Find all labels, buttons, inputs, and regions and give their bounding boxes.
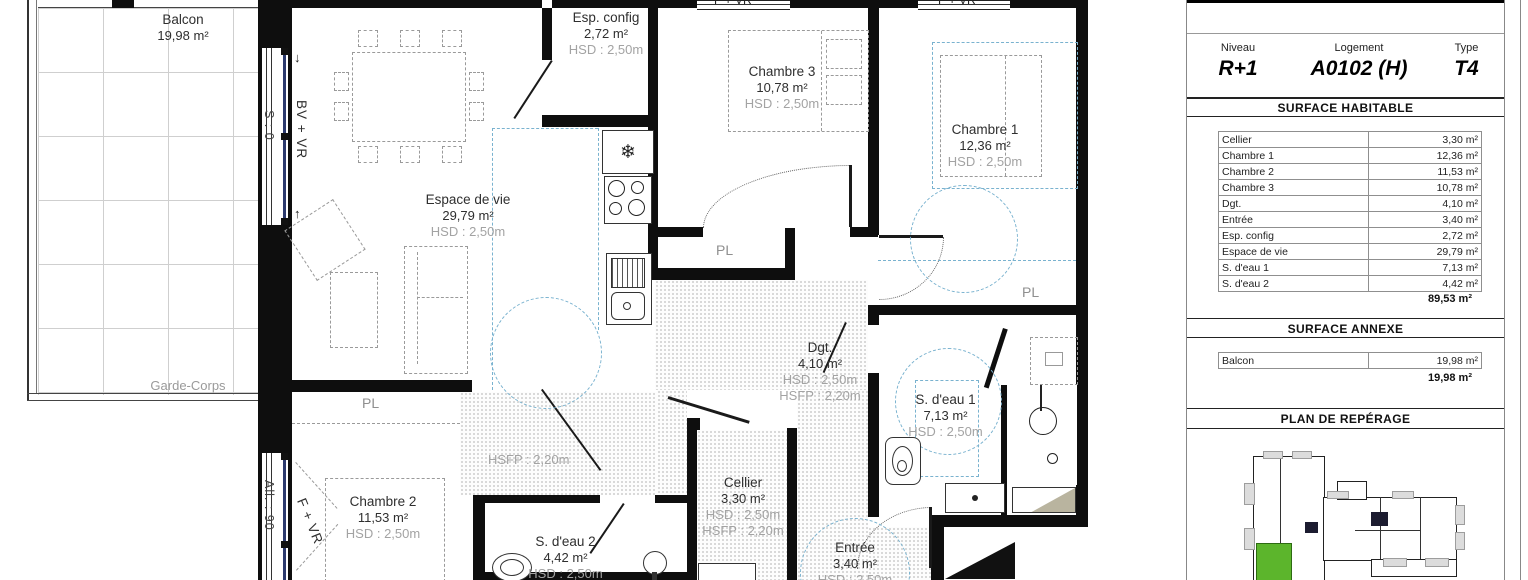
shelf-icon — [698, 563, 756, 580]
burner-icon — [631, 181, 644, 194]
shower-head-icon — [1029, 407, 1057, 435]
placard-label: PL — [362, 395, 379, 411]
burner-icon — [628, 199, 645, 216]
window-stop — [281, 218, 288, 225]
door-leaf — [849, 165, 852, 227]
wall-segment — [658, 227, 703, 237]
wall-segment — [931, 527, 944, 580]
room-label-chambre-2: Chambre 2 11,53 m² HSD : 2,50m — [323, 494, 443, 542]
garde-corps-line — [27, 400, 258, 401]
map-line — [1420, 497, 1421, 559]
surface-annexe-total: 19,98 m² — [1330, 372, 1472, 384]
chair — [358, 146, 378, 163]
ceiling-zone-circle — [910, 185, 1018, 293]
panel-line — [1187, 318, 1504, 319]
kitchen-zone-line — [492, 128, 598, 129]
unit-header: Niveau R+1 Logement A0102 (H) Type T4 — [1187, 42, 1504, 81]
fridge-icon: ❄ — [602, 130, 654, 174]
room-label-s-deau-2: S. d'eau 2 4,42 m² HSD : 2,50m — [508, 534, 623, 580]
table-row: Dgt.4,10 m² — [1219, 196, 1482, 212]
table-row: Espace de vie29,79 m² — [1219, 244, 1482, 260]
wall-segment — [790, 0, 918, 8]
window-type-label: F + VR — [938, 0, 976, 7]
room-label-cellier: Cellier 3,30 m² HSD : 2,50m HSFP : 2,20m — [700, 475, 786, 539]
wall-segment — [785, 228, 795, 280]
map-line — [1280, 456, 1281, 546]
burner-icon — [608, 180, 625, 197]
logement-label: Logement — [1289, 42, 1429, 54]
chair — [334, 72, 349, 91]
panel-line — [1187, 337, 1504, 338]
map-balcony-tick — [1263, 451, 1283, 459]
arrow-down-icon: ↓ — [294, 50, 301, 65]
map-line — [1355, 530, 1420, 531]
floor-plan-sheet: Balcon 19,98 m² Garde-Corps S : 0 BV + V… — [0, 0, 1528, 580]
window-frame — [283, 453, 286, 580]
wall-segment — [542, 115, 658, 127]
map-balcony-tick — [1383, 558, 1407, 567]
chair — [442, 146, 462, 163]
shower-icon — [1007, 385, 1077, 485]
hsfp-label: HSFP : 2,20m — [488, 452, 569, 467]
wall-segment — [655, 495, 687, 503]
chair — [400, 146, 420, 163]
window-type-label: F + VR — [294, 496, 326, 546]
table-row: Cellier3,30 m² — [1219, 132, 1482, 148]
map-stair-core — [1305, 522, 1318, 533]
arrow-up-icon: ↑ — [294, 206, 301, 221]
drain-icon — [972, 495, 978, 501]
type-label: Type — [1429, 42, 1504, 54]
niveau-value: R+1 — [1187, 57, 1289, 81]
sofa-line — [417, 297, 463, 298]
map-balcony-tick — [1392, 491, 1414, 499]
chair — [442, 30, 462, 47]
surface-habitable-title: SURFACE HABITABLE — [1187, 101, 1504, 115]
wall-segment — [868, 315, 879, 325]
vanity-icon — [945, 483, 1005, 513]
wall-segment — [687, 428, 697, 580]
kitchen-zone-line — [598, 128, 599, 330]
sofa — [404, 246, 468, 374]
wall-segment — [292, 0, 542, 8]
surface-habitable-total: 89,53 m² — [1330, 293, 1472, 305]
room-label-esp-config: Esp. config 2,72 m² HSD : 2,50m — [550, 10, 662, 58]
table-row: Chambre 211,53 m² — [1219, 164, 1482, 180]
door-arc — [703, 165, 851, 228]
window-sill-label: All. : 90 — [262, 480, 276, 531]
niveau-cell: Niveau R+1 — [1187, 42, 1289, 81]
table-row: Entrée3,40 m² — [1219, 212, 1482, 228]
window-stop — [281, 541, 288, 548]
table-row: S. d'eau 24,42 m² — [1219, 276, 1482, 292]
map-line — [1380, 497, 1381, 559]
map-balcony-tick — [1327, 491, 1349, 499]
door-leaf — [929, 507, 932, 568]
burner-icon — [609, 202, 622, 215]
room-label-chambre-1: Chambre 1 12,36 m² HSD : 2,50m — [925, 122, 1045, 170]
surface-annexe-table: Balcon19,98 m² — [1218, 352, 1482, 369]
chair — [358, 30, 378, 47]
map-balcony-tick — [1425, 558, 1449, 567]
ceiling-zone-line — [878, 260, 1076, 261]
pedestal-icon — [652, 572, 657, 580]
chair — [469, 72, 484, 91]
type-value: T4 — [1429, 57, 1504, 81]
plan-reperage-title: PLAN DE REPÉRAGE — [1187, 412, 1504, 426]
kitchen-sink-icon — [606, 253, 652, 325]
balcony-inner-edge — [36, 0, 37, 394]
shower-arm-icon — [1040, 385, 1042, 411]
drain-icon — [623, 302, 631, 310]
window-type-label: BV + VR — [294, 100, 309, 159]
wall-segment — [930, 515, 1088, 527]
chair — [400, 30, 420, 47]
map-balcony-tick — [1292, 451, 1312, 459]
sofa-line — [417, 252, 454, 364]
map-balcony-tick — [1455, 532, 1465, 550]
map-balcony-tick — [1244, 528, 1255, 550]
balcony-tile-grid — [38, 7, 258, 395]
door-leaf — [513, 60, 552, 119]
building-block — [1323, 497, 1457, 561]
map-balcony-tick — [1455, 505, 1465, 525]
coffee-table — [330, 272, 378, 348]
room-label-s-deau-1: S. d'eau 1 7,13 m² HSD : 2,50m — [888, 392, 1003, 440]
logement-cell: Logement A0102 (H) — [1289, 42, 1429, 81]
niveau-label: Niveau — [1187, 42, 1289, 54]
window-stop — [281, 453, 288, 460]
wall-segment — [868, 305, 1088, 315]
ceiling-zone-circle — [490, 297, 602, 409]
wall-segment — [552, 0, 697, 8]
highlighted-unit — [1256, 543, 1292, 580]
wall-segment — [787, 428, 797, 580]
stove-icon — [604, 176, 652, 224]
room-label-chambre-3: Chambre 3 10,78 m² HSD : 2,50m — [722, 64, 842, 112]
shower-tray-icon — [1012, 487, 1076, 513]
chair — [334, 102, 349, 121]
tray-shade — [1013, 488, 1075, 512]
washer-drum-icon — [1045, 352, 1063, 366]
type-cell: Type T4 — [1429, 42, 1504, 81]
chair — [469, 102, 484, 121]
map-stair-core — [1371, 512, 1388, 526]
table-row: Esp. config2,72 m² — [1219, 228, 1482, 244]
locator-map — [1187, 429, 1504, 580]
window-stop — [281, 133, 288, 140]
dining-table — [352, 52, 466, 142]
panel-border — [1504, 0, 1505, 580]
panel-line — [1187, 408, 1504, 409]
window-stop — [281, 48, 288, 55]
room-label-espace-de-vie: Espace de vie 29,79 m² HSD : 2,50m — [398, 192, 538, 240]
toilet-icon — [885, 437, 921, 485]
balcony-label: Balcon 19,98 m² — [120, 12, 246, 44]
wall-segment — [473, 495, 485, 580]
washing-machine — [1030, 337, 1078, 385]
garde-corps-label: Garde-Corps — [120, 378, 256, 394]
corridor-floor — [657, 390, 687, 495]
placard-label: PL — [1022, 284, 1039, 300]
wall-segment — [485, 495, 600, 503]
room-label-entree: Entrée 3,40 m² HSD : 2,50m — [800, 540, 910, 580]
map-balcony-tick — [1244, 483, 1255, 505]
closet-line — [292, 423, 460, 424]
wall-segment — [112, 0, 134, 8]
window-sill-label: S : 0 — [262, 110, 276, 141]
table-row: S. d'eau 17,13 m² — [1219, 260, 1482, 276]
drain-icon — [1047, 453, 1058, 464]
table-row: Chambre 310,78 m² — [1219, 180, 1482, 196]
wall-segment — [648, 268, 795, 280]
panel-line — [1187, 33, 1504, 34]
window-type-label: F + VR — [714, 0, 752, 7]
surface-habitable-table: Cellier3,30 m² Chambre 112,36 m² Chambre… — [1218, 131, 1482, 292]
panel-top-bar — [1187, 0, 1504, 3]
drainer-icon — [611, 258, 645, 288]
toilet-drain-icon — [897, 460, 907, 472]
room-label-dgt: Dgt. 4,10 m² HSD : 2,50m HSFP : 2,20m — [760, 340, 880, 404]
logement-value: A0102 (H) — [1289, 57, 1429, 81]
placard-label: PL — [716, 242, 733, 258]
sheet-border — [1520, 0, 1521, 580]
balcony-outer-edge — [27, 0, 29, 401]
wall-segment — [868, 0, 879, 235]
entrance-arrow-icon — [945, 542, 1015, 579]
surface-annexe-title: SURFACE ANNEXE — [1187, 322, 1504, 336]
wall-segment — [280, 380, 463, 392]
panel-line — [1187, 97, 1504, 99]
panel-line — [1187, 116, 1504, 117]
table-row: Balcon19,98 m² — [1219, 353, 1482, 369]
table-row: Chambre 112,36 m² — [1219, 148, 1482, 164]
